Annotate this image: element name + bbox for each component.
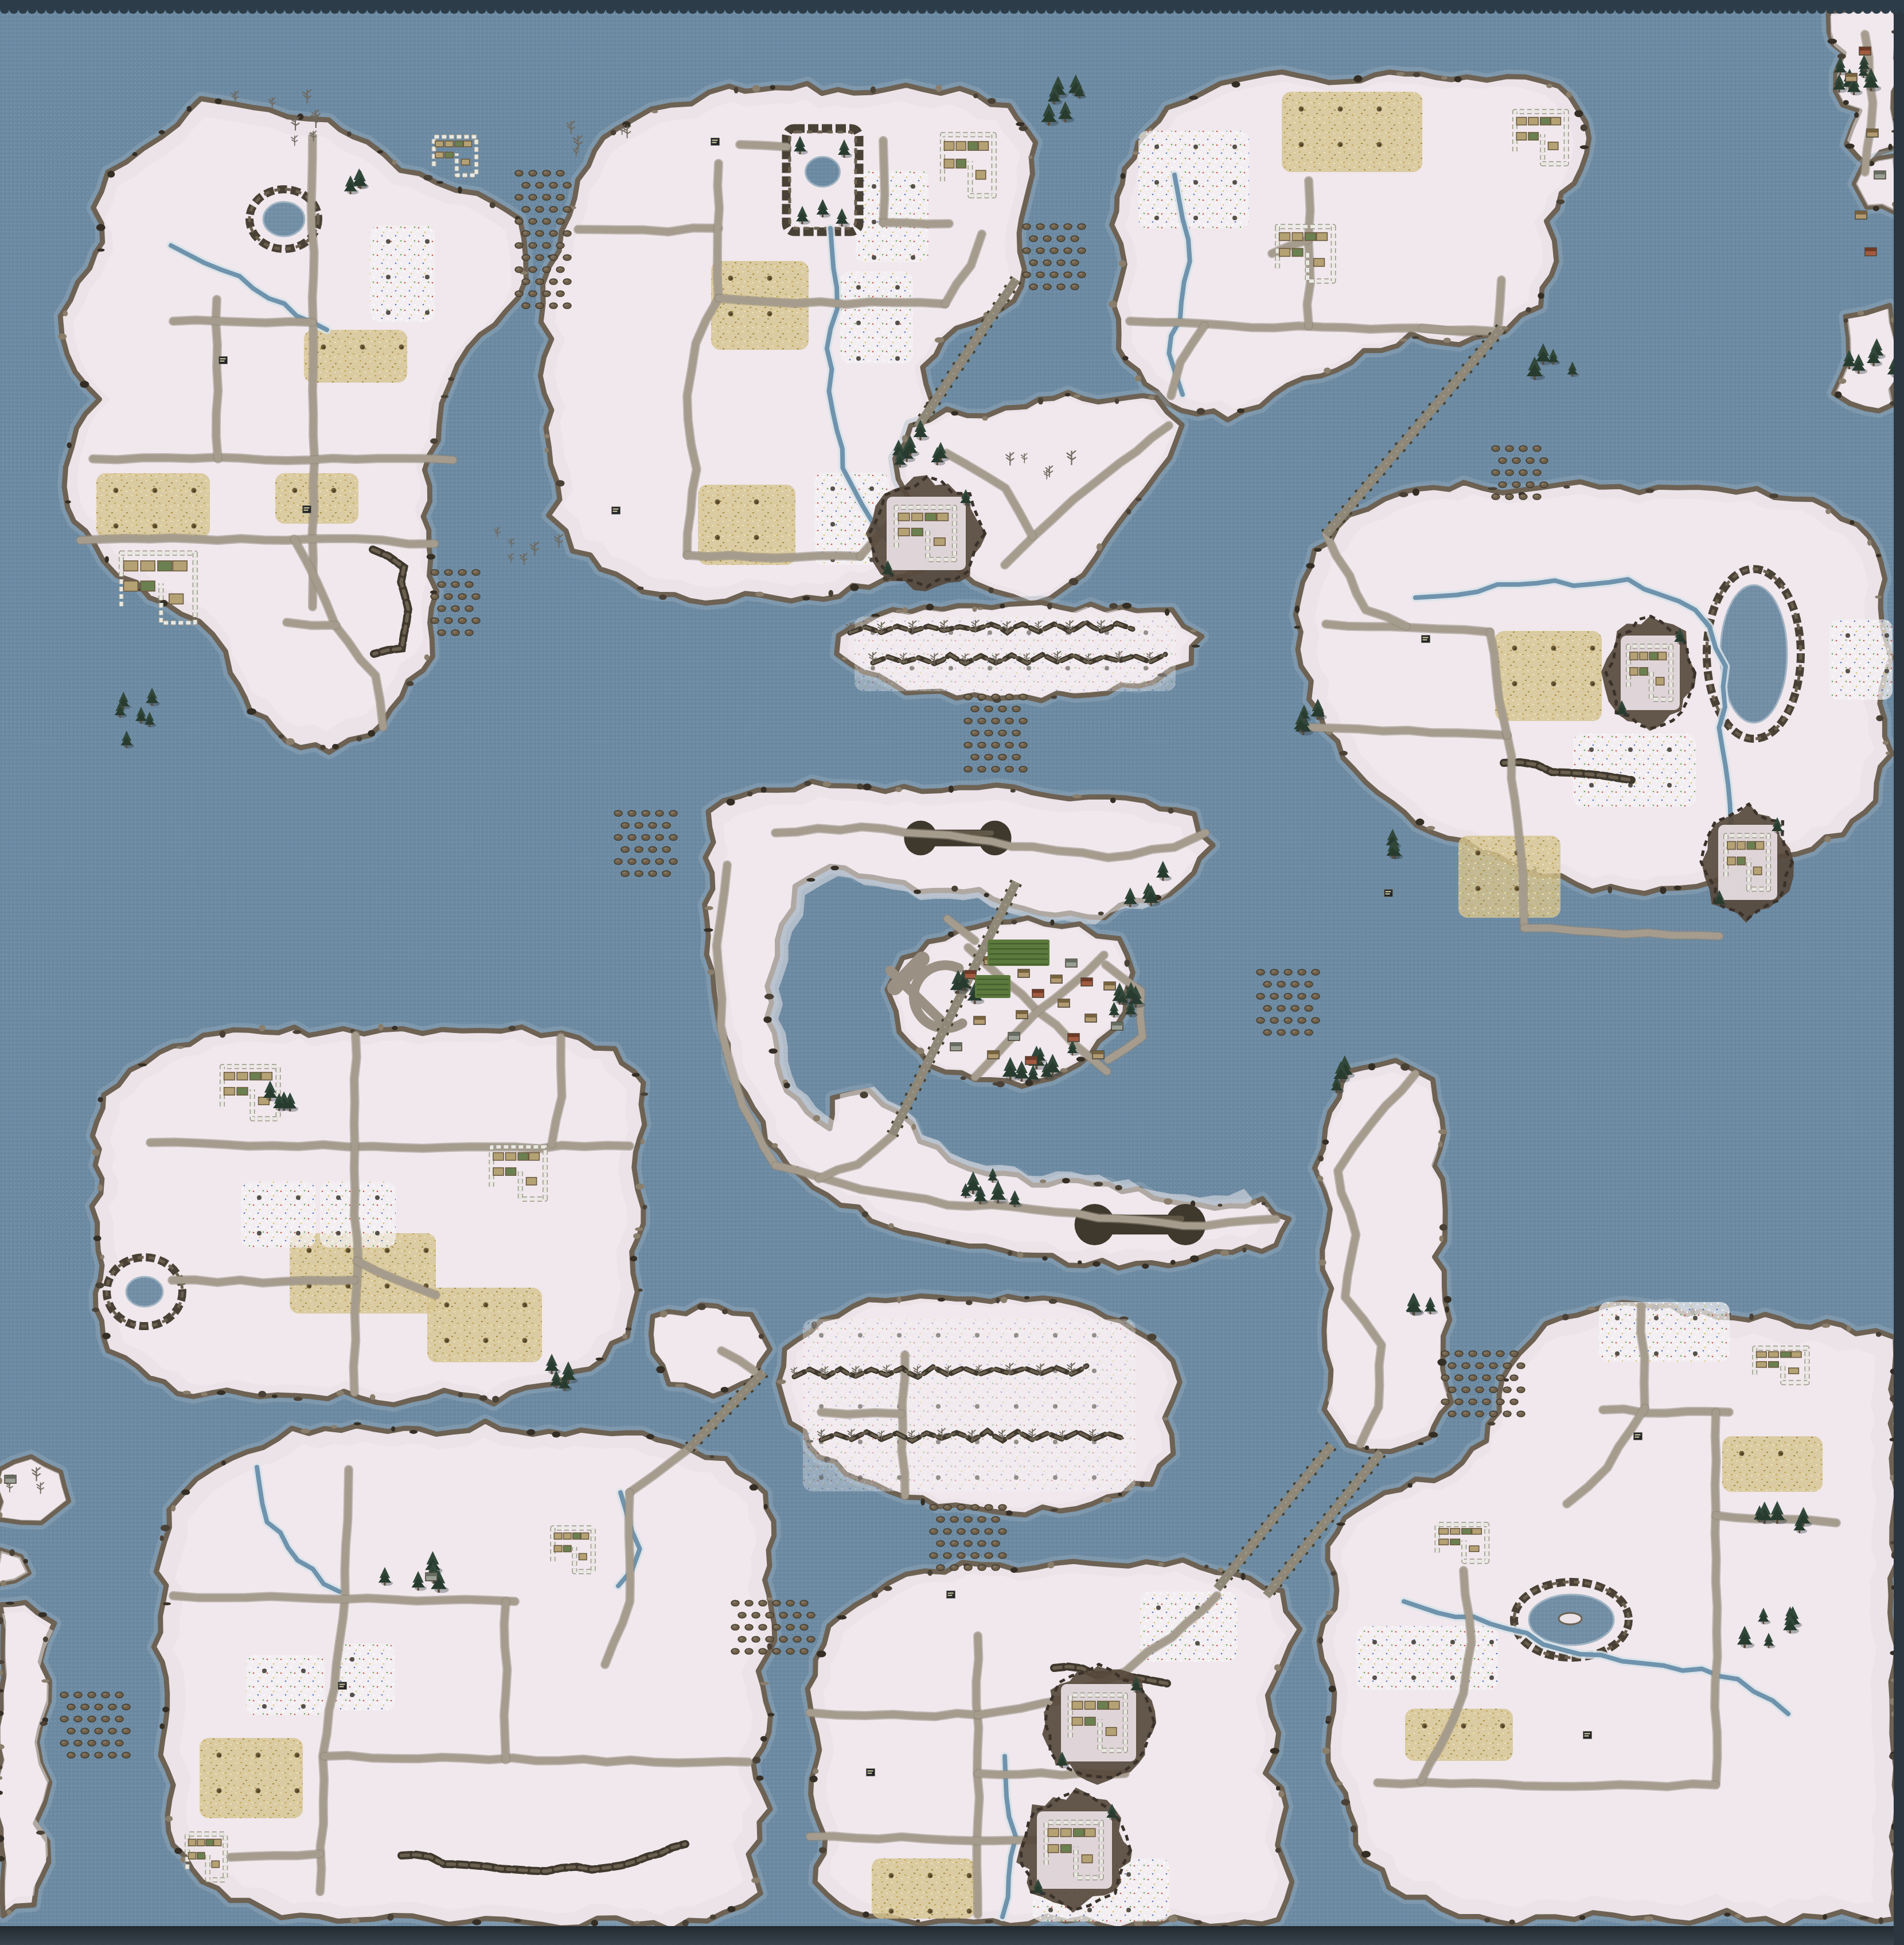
road bbox=[717, 163, 719, 298]
civilian-house bbox=[974, 1016, 985, 1024]
civilian-house bbox=[426, 1573, 437, 1581]
gem-field bbox=[840, 271, 913, 363]
gem-field bbox=[1599, 1302, 1730, 1362]
civilian-house bbox=[1081, 978, 1093, 986]
waypoint-marker bbox=[1634, 1433, 1642, 1440]
gem-field bbox=[1138, 131, 1249, 228]
civilian-house bbox=[1016, 1011, 1028, 1019]
road bbox=[1715, 1412, 1718, 1783]
road bbox=[883, 223, 949, 224]
civilian-house bbox=[1859, 47, 1871, 55]
road bbox=[810, 1836, 1039, 1841]
road bbox=[80, 538, 435, 544]
civilian-house bbox=[1874, 171, 1886, 179]
gem-field bbox=[1573, 734, 1696, 807]
road bbox=[810, 1713, 978, 1717]
civilian-house bbox=[1018, 969, 1029, 977]
ore-field bbox=[1458, 836, 1560, 918]
road bbox=[93, 457, 453, 461]
gem-field bbox=[803, 1319, 1136, 1491]
road bbox=[173, 1596, 515, 1601]
road bbox=[231, 1854, 320, 1857]
ore-field bbox=[872, 1858, 975, 1919]
waypoint-marker bbox=[1422, 636, 1430, 643]
road bbox=[883, 141, 885, 223]
waypoint-marker bbox=[338, 1682, 347, 1690]
civilian-house bbox=[5, 1475, 16, 1483]
road bbox=[821, 1412, 902, 1414]
road bbox=[354, 1035, 358, 1393]
ore-field bbox=[304, 330, 407, 383]
civilian-house bbox=[1104, 982, 1115, 990]
road bbox=[173, 320, 313, 323]
road bbox=[1603, 1409, 1729, 1413]
gem-field bbox=[246, 1655, 325, 1715]
gem-field bbox=[856, 170, 928, 262]
civilian-house bbox=[1051, 975, 1062, 983]
civilian-house bbox=[1068, 1034, 1079, 1042]
gem-field bbox=[334, 1643, 395, 1710]
civilian-house bbox=[1032, 989, 1044, 997]
gem-field bbox=[1356, 1626, 1498, 1690]
game-map-viewport[interactable]: rts-snow-archipelago-map bbox=[0, 0, 1904, 1945]
border-bottom bbox=[0, 1926, 1904, 1945]
gem-field bbox=[241, 1182, 315, 1248]
road bbox=[578, 228, 719, 232]
civilian-house bbox=[1111, 1022, 1123, 1030]
ore-field bbox=[1722, 1436, 1823, 1492]
island-edge-w-2 bbox=[0, 1549, 29, 1587]
waypoint-marker bbox=[612, 507, 621, 514]
road bbox=[1641, 1307, 1645, 1408]
waypoint-marker bbox=[303, 506, 311, 513]
waypoint-marker bbox=[711, 138, 720, 146]
civilian-house bbox=[1846, 73, 1857, 81]
island-edge-w-3 bbox=[0, 1601, 54, 1916]
island-edge-ne-2 bbox=[1854, 156, 1898, 212]
road bbox=[287, 622, 336, 625]
road bbox=[719, 298, 945, 305]
road bbox=[687, 555, 860, 558]
crop-field bbox=[988, 940, 1049, 966]
civilian-house bbox=[1093, 1051, 1104, 1059]
ore-field bbox=[1495, 631, 1602, 721]
waypoint-marker bbox=[219, 357, 228, 364]
gem-field bbox=[370, 225, 435, 322]
road bbox=[902, 1355, 905, 1496]
civilian-house bbox=[1025, 1057, 1037, 1065]
road bbox=[740, 145, 787, 147]
civilian-house bbox=[950, 1043, 962, 1051]
ore-field bbox=[200, 1738, 303, 1818]
civilian-house bbox=[1008, 1032, 1020, 1040]
ore-field bbox=[96, 473, 210, 538]
civilian-house bbox=[965, 970, 976, 979]
waypoint-marker bbox=[1384, 890, 1393, 897]
gem-field bbox=[1829, 619, 1893, 700]
ore-field bbox=[1282, 92, 1422, 172]
waypoint-marker bbox=[947, 1591, 955, 1599]
border-right bbox=[1894, 0, 1904, 1945]
civilian-house bbox=[988, 1051, 999, 1059]
island-edge-w-1 bbox=[0, 1457, 69, 1523]
civilian-house bbox=[1085, 1014, 1097, 1022]
civilian-house bbox=[1855, 211, 1867, 219]
road bbox=[1378, 1782, 1716, 1787]
civilian-house bbox=[1865, 248, 1876, 256]
game-map-canvas[interactable] bbox=[0, 0, 1904, 1945]
waypoint-marker bbox=[1583, 1732, 1592, 1739]
civilian-house bbox=[1066, 959, 1077, 967]
civilian-house bbox=[1058, 999, 1070, 1007]
ore-field bbox=[427, 1288, 542, 1362]
waypoint-marker bbox=[867, 1769, 875, 1776]
road bbox=[172, 1280, 354, 1283]
civilian-house bbox=[1867, 129, 1878, 137]
road bbox=[150, 1142, 630, 1149]
road bbox=[504, 1601, 507, 1760]
island-edge-ne-3 bbox=[1834, 306, 1901, 411]
crop-field bbox=[975, 975, 1010, 998]
